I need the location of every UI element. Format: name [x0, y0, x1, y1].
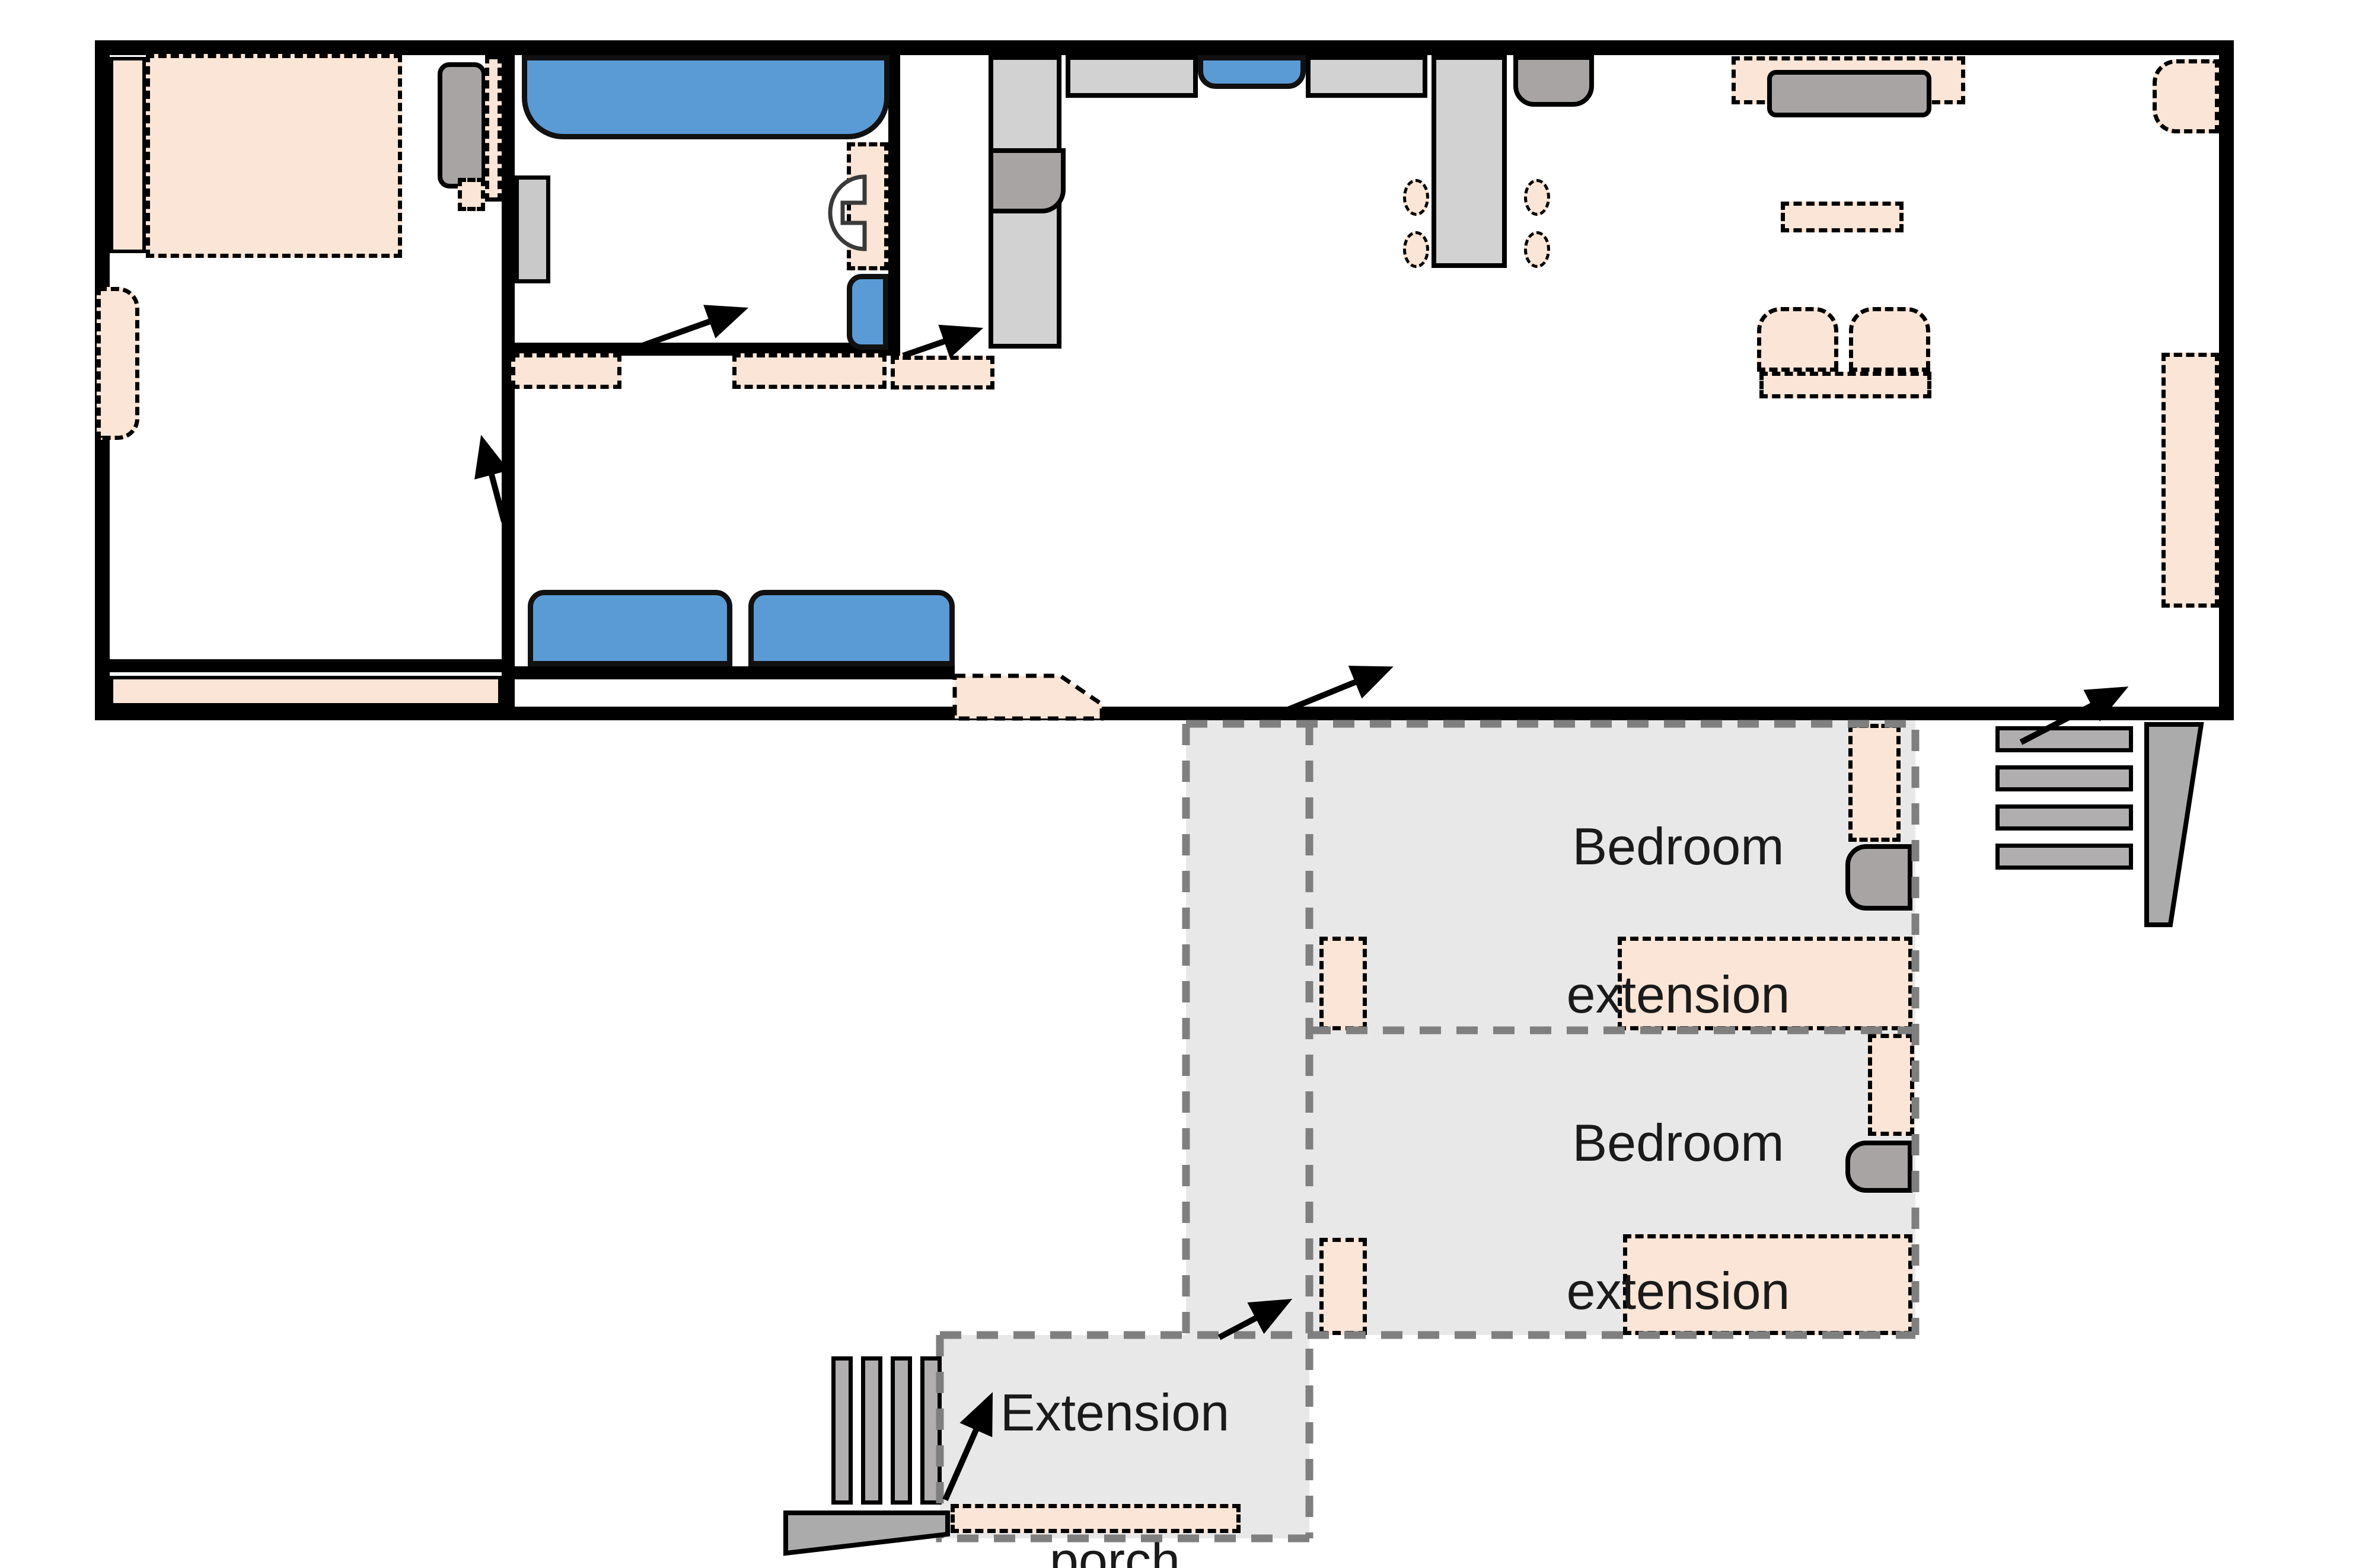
stairs-porch-ramp [786, 1513, 948, 1553]
arrow-bedroom-door [483, 443, 504, 522]
arrow-bathroom-door [627, 311, 740, 351]
toilet-icon [830, 177, 865, 249]
entry-doormat [955, 676, 1102, 718]
arrow-main-entrance [1269, 670, 1385, 717]
arrow-right-entrance [2021, 691, 2121, 742]
floor-plan-canvas: Bedroom extension Bedroom extension Exte… [0, 0, 2372, 1568]
arrow-porch-entrance [945, 1400, 989, 1500]
overlay-graphics [0, 0, 2372, 1568]
arrow-closet-door [903, 331, 975, 356]
stairs-right-ramp [2147, 724, 2201, 925]
extension-outline [940, 724, 1915, 1538]
